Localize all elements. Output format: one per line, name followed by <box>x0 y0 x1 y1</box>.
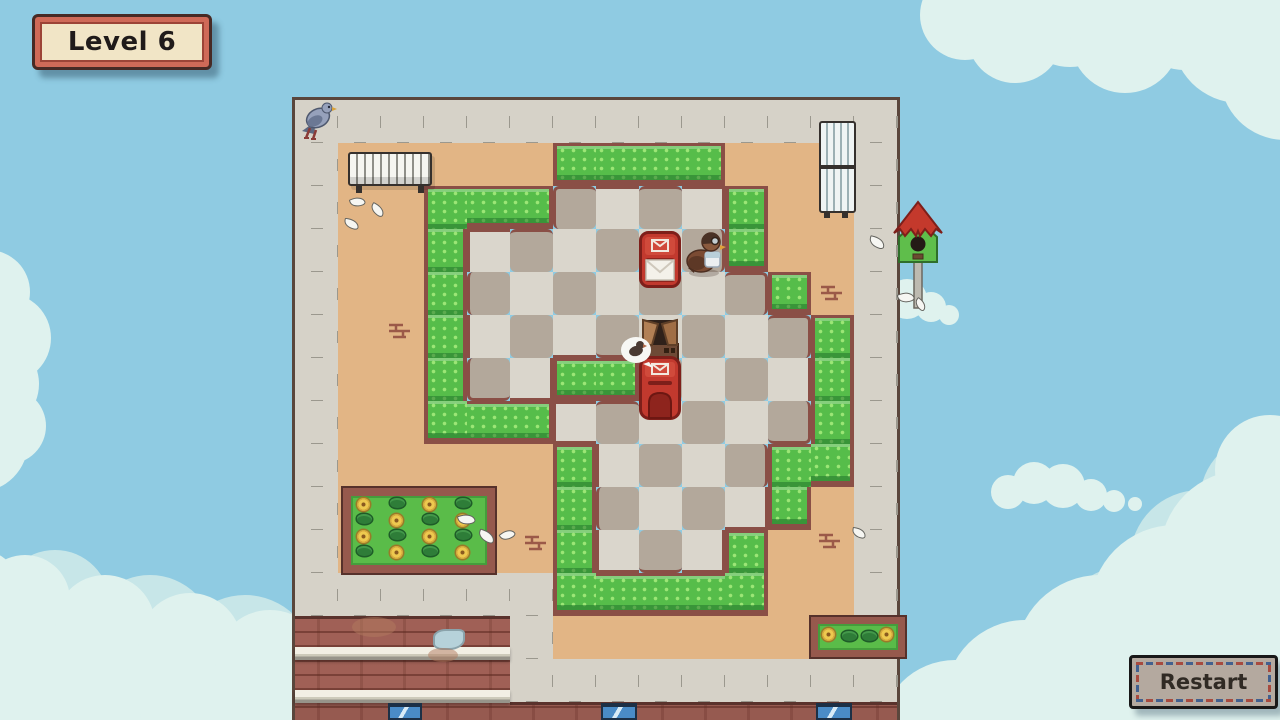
brickdecal <box>816 528 846 554</box>
tile-stone-path <box>854 487 897 530</box>
tile-hedge <box>725 186 768 229</box>
tile-plaza-checker <box>553 272 596 315</box>
tile-dirt-ground <box>768 616 811 659</box>
tile-stone-path <box>854 315 897 358</box>
tile-plaza-checker <box>467 272 510 315</box>
tile-plaza-checker <box>553 186 596 229</box>
flower <box>880 628 893 641</box>
tile-dirt-ground <box>510 143 553 186</box>
tile-brick-window-row <box>768 702 811 720</box>
tile-stone-path <box>553 100 596 143</box>
tile-stone-path <box>510 100 553 143</box>
brickdecal <box>522 530 552 556</box>
tile-dirt-ground <box>381 444 424 487</box>
tile-plaza-checker <box>510 315 553 358</box>
tile-plaza-checker <box>768 401 811 444</box>
cloud <box>1103 490 1125 512</box>
tile-dirt-ground <box>811 573 854 616</box>
flower <box>357 498 370 511</box>
tile-stone-path <box>639 100 682 143</box>
tile-dirt-ground <box>811 487 854 530</box>
bush <box>862 631 877 641</box>
tile-dirt-ground <box>338 444 381 487</box>
tile-brick-window-row <box>854 702 897 720</box>
tile-hedge <box>811 358 854 401</box>
tile-stone-path <box>295 401 338 444</box>
tile-dirt-ground <box>682 616 725 659</box>
tile-stone-path <box>295 487 338 530</box>
tile-hedge <box>768 444 811 487</box>
pigeon-icon <box>296 101 338 143</box>
bush <box>357 514 372 524</box>
tile-dirt-ground <box>510 444 553 487</box>
tile-hedge <box>553 444 596 487</box>
tile-plaza-checker <box>510 358 553 401</box>
bench <box>348 152 432 186</box>
tile-plaza-checker <box>725 358 768 401</box>
tile-hedge <box>553 573 596 616</box>
tile-stone-path <box>381 573 424 616</box>
tile-stone-path <box>768 100 811 143</box>
tile-plaza-checker <box>467 229 510 272</box>
tile-plaza-checker <box>596 530 639 573</box>
tile-brick-window-row <box>682 702 725 720</box>
tile-hedge <box>811 444 854 487</box>
tile-stone-path <box>854 573 897 616</box>
tile-hedge <box>725 229 768 272</box>
tile-stone-path <box>467 100 510 143</box>
bush <box>423 514 438 524</box>
tile-dirt-ground <box>338 401 381 444</box>
bush <box>357 546 372 556</box>
tile-stone-path <box>682 659 725 702</box>
tile-dirt-ground <box>381 272 424 315</box>
tile-dirt-ground <box>338 272 381 315</box>
tile-stone-path <box>424 100 467 143</box>
tile-plaza-checker <box>639 444 682 487</box>
tile-hedge <box>811 401 854 444</box>
tile-hedge <box>424 315 467 358</box>
tile-stone-path <box>295 186 338 229</box>
garden <box>343 488 495 573</box>
tile-dirt-ground <box>467 143 510 186</box>
tile-hedge <box>725 573 768 616</box>
tile-dirt-ground <box>381 401 424 444</box>
tile-plaza-checker <box>510 272 553 315</box>
flower <box>822 628 835 641</box>
tile-stone-path <box>424 573 467 616</box>
tile-stone-path <box>510 573 553 616</box>
tile-dirt-ground <box>338 229 381 272</box>
tile-hedge <box>467 401 510 444</box>
flower <box>390 546 403 559</box>
tile-dirt-ground <box>596 616 639 659</box>
tile-dirt-ground <box>768 573 811 616</box>
tile-hedge <box>811 315 854 358</box>
tile-hedge <box>424 272 467 315</box>
stain <box>428 648 458 662</box>
tile-stone-path <box>639 659 682 702</box>
tile-plaza-checker <box>682 487 725 530</box>
tile-stone-path <box>381 100 424 143</box>
tile-hedge <box>768 487 811 530</box>
tile-stone-path <box>553 659 596 702</box>
cloud <box>55 575 155 675</box>
tile-dirt-ground <box>553 616 596 659</box>
tile-plaza-checker <box>682 444 725 487</box>
tile-stone-path <box>725 100 768 143</box>
tile-plaza-checker <box>639 186 682 229</box>
tile-plaza-checker <box>596 487 639 530</box>
tile-hedge <box>553 358 596 401</box>
tile-stone-path <box>467 573 510 616</box>
tile-plaza-checker <box>553 229 596 272</box>
tile-plaza-checker <box>596 186 639 229</box>
tile-plaza-checker <box>725 315 768 358</box>
tile-stone-path <box>854 186 897 229</box>
tile-plaza-checker <box>467 315 510 358</box>
tile-stone-path <box>295 315 338 358</box>
tile-hedge <box>424 401 467 444</box>
tile-dirt-ground <box>768 143 811 186</box>
bush <box>456 498 471 508</box>
tile-hedge <box>553 487 596 530</box>
tile-stone-path <box>854 100 897 143</box>
tile-hedge <box>553 530 596 573</box>
tile-stone-path <box>295 229 338 272</box>
tile-plaza-checker <box>725 444 768 487</box>
tile-hedge <box>424 229 467 272</box>
tile-hedge <box>596 143 639 186</box>
tile-dirt-ground <box>811 229 854 272</box>
tile-plaza-checker <box>596 229 639 272</box>
tile-hedge <box>768 272 811 315</box>
tile-dirt-ground <box>768 229 811 272</box>
tile-stone-path <box>510 616 553 659</box>
window <box>388 703 422 720</box>
tile-stone-path <box>510 659 553 702</box>
tile-brick-window-row <box>510 702 553 720</box>
game-screen: Level 6 Restart <box>0 0 1280 720</box>
tile-plaza-checker <box>768 358 811 401</box>
tile-brick-window-row <box>639 702 682 720</box>
flower <box>390 514 403 527</box>
tile-brick-window-row <box>295 702 338 720</box>
level-label: Level 6 <box>40 22 204 62</box>
flower <box>423 530 436 543</box>
poster <box>433 629 465 650</box>
tile-hedge <box>596 573 639 616</box>
tile-plaza-checker <box>725 272 768 315</box>
tile-stone-path <box>768 659 811 702</box>
tile-hedge <box>553 143 596 186</box>
tile-plaza-checker <box>682 186 725 229</box>
tile-stone-path <box>295 358 338 401</box>
tile-hedge <box>725 530 768 573</box>
mailbox-top <box>639 231 681 292</box>
tile-dirt-ground <box>725 616 768 659</box>
tile-dirt-ground <box>639 616 682 659</box>
tile-brick-window-row <box>424 702 467 720</box>
tile-hedge <box>510 401 553 444</box>
tile-stone-path <box>854 444 897 487</box>
bush <box>456 530 471 540</box>
restart-button[interactable]: Restart <box>1129 655 1278 709</box>
tile-plaza-checker <box>553 315 596 358</box>
tile-plaza-checker <box>768 315 811 358</box>
tile-stone-path <box>295 530 338 573</box>
tile-stone-path <box>338 100 381 143</box>
tile-plaza-checker <box>510 229 553 272</box>
tile-dirt-ground <box>338 315 381 358</box>
tile-stone-path <box>338 573 381 616</box>
flower <box>423 498 436 511</box>
ledge <box>295 647 510 660</box>
restart-label[interactable]: Restart <box>1136 662 1271 702</box>
tile-plaza-checker <box>596 401 639 444</box>
flower <box>456 546 469 559</box>
tile-stone-path <box>854 659 897 702</box>
tile-hedge <box>682 143 725 186</box>
tile-brick-window-row <box>553 702 596 720</box>
tile-stone-path <box>295 272 338 315</box>
tile-plaza-checker <box>725 487 768 530</box>
tile-stone-path <box>854 358 897 401</box>
bush <box>390 498 405 508</box>
tile-plaza-checker <box>725 401 768 444</box>
planter <box>811 617 905 657</box>
tile-dirt-ground <box>381 229 424 272</box>
tile-dirt-ground <box>467 444 510 487</box>
tile-brick-window-row <box>467 702 510 720</box>
tile-hedge <box>639 573 682 616</box>
tile-plaza-checker <box>639 487 682 530</box>
tile-dirt-ground <box>381 358 424 401</box>
tile-stone-path <box>596 659 639 702</box>
radiator <box>819 121 856 213</box>
cloud <box>1075 479 1107 511</box>
flower <box>357 530 370 543</box>
tile-dirt-ground <box>768 186 811 229</box>
tile-dirt-ground <box>338 358 381 401</box>
bush <box>842 631 857 641</box>
ledge <box>295 690 510 703</box>
tile-dirt-ground <box>424 444 467 487</box>
tile-plaza-checker <box>596 272 639 315</box>
tile-brick-window-row <box>725 702 768 720</box>
courier-character <box>684 230 728 282</box>
tile-hedge <box>510 186 553 229</box>
tile-stone-path <box>596 100 639 143</box>
tile-plaza-checker <box>639 530 682 573</box>
tile-stone-path <box>854 143 897 186</box>
brickdecal <box>386 318 416 344</box>
tile-plaza-checker <box>596 444 639 487</box>
tile-plaza-checker <box>682 358 725 401</box>
stain <box>352 617 396 637</box>
tile-stone-path <box>725 659 768 702</box>
level-badge: Level 6 <box>32 14 212 70</box>
tile-brick-window-row <box>338 702 381 720</box>
bubble <box>619 335 657 375</box>
brickdecal <box>818 280 848 306</box>
tile-hedge <box>424 358 467 401</box>
tile-stone-path <box>854 272 897 315</box>
tile-stone-path <box>811 659 854 702</box>
window <box>816 703 852 720</box>
tile-hedge <box>639 143 682 186</box>
tile-plaza-checker <box>682 530 725 573</box>
tile-plaza-checker <box>682 401 725 444</box>
game-board[interactable] <box>292 97 900 720</box>
tile-stone-path <box>295 444 338 487</box>
window <box>601 703 637 720</box>
tile-dirt-ground <box>510 487 553 530</box>
tile-dirt-ground <box>768 530 811 573</box>
tile-stone-path <box>854 401 897 444</box>
tile-hedge <box>424 186 467 229</box>
tile-plaza-checker <box>682 315 725 358</box>
tile-plaza-checker <box>553 401 596 444</box>
tile-stone-path <box>295 143 338 186</box>
tile-plaza-checker <box>467 358 510 401</box>
bush <box>390 530 405 540</box>
tile-stone-path <box>682 100 725 143</box>
tile-stone-path <box>295 573 338 616</box>
bush <box>423 546 438 556</box>
tile-dirt-ground <box>725 143 768 186</box>
tile-hedge <box>467 186 510 229</box>
cloud <box>1128 497 1142 511</box>
tile-hedge <box>682 573 725 616</box>
